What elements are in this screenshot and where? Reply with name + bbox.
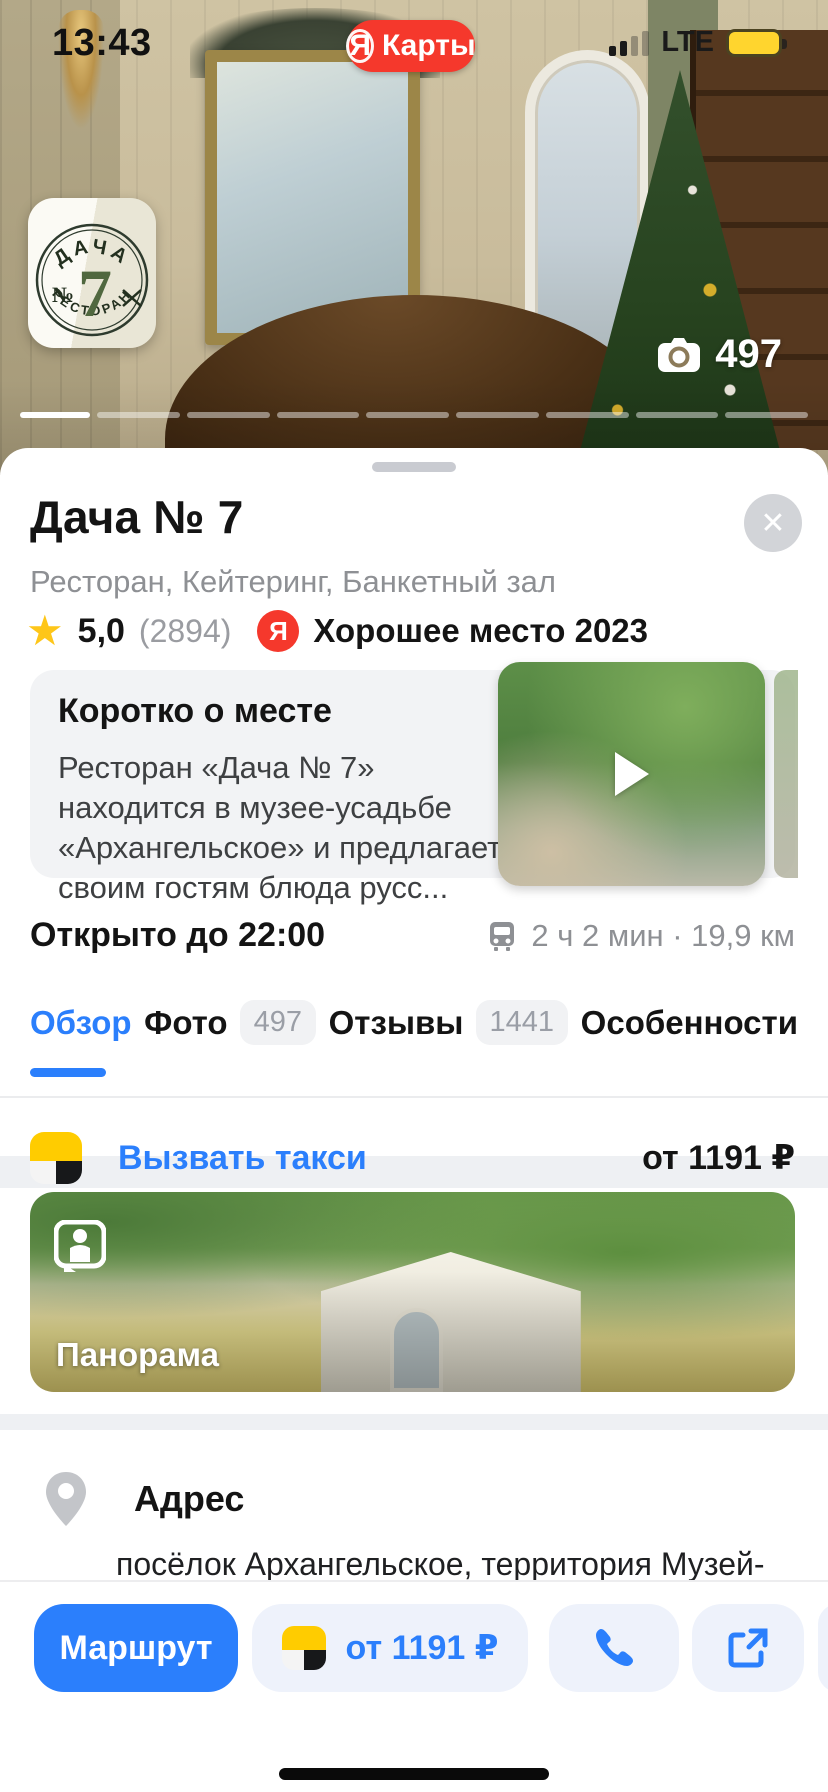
award-label: Хорошее место 2023 [313,612,648,650]
taxi-button-price: от 1191 ₽ [346,1628,499,1668]
tab-reviews-badge: 1441 [476,1000,569,1045]
route-info-text: 2 ч 2 мин · 19,9 км [531,918,795,954]
place-categories: Ресторан, Кейтеринг, Банкетный зал [30,564,556,600]
route-info[interactable]: 2 ч 2 мин · 19,9 км [485,918,795,954]
logo-number-sign: № [52,282,74,307]
yandex-maps-app-badge[interactable]: Я Карты [347,20,475,72]
star-icon: ★ [26,610,64,652]
photo-count-button[interactable]: 497 [657,332,782,377]
status-bar: 13:43 Я Карты LTE [0,18,828,70]
phone-icon [591,1625,637,1671]
network-type-label: LTE [661,26,714,59]
status-time: 13:43 [52,22,152,65]
panorama-decoration-shade [30,1272,795,1392]
panorama-person-icon [54,1220,106,1272]
yandex-go-icon [282,1626,326,1670]
video-thumbnail[interactable] [498,662,765,886]
tab-photos-badge: 497 [240,1000,316,1045]
video-thumbnail-next [774,670,798,878]
yandex-maps-place-screen: 13:43 Я Карты LTE ДАЧА [0,0,828,1792]
location-pin-icon [42,1470,90,1528]
tab-photos[interactable]: Фото 497 [144,1000,316,1045]
active-tab-underline [30,1068,106,1077]
panorama-label: Панорама [56,1336,219,1374]
rating-row[interactable]: ★ 5,0 (2894) Я Хорошее место 2023 [26,610,648,652]
section-separator [0,1414,828,1430]
place-photo-gallery[interactable]: 13:43 Я Карты LTE ДАЧА [0,0,828,475]
call-taxi-link[interactable]: Вызвать такси [118,1139,367,1178]
rating-value: 5,0 [78,612,125,651]
bus-icon [485,919,519,953]
route-button[interactable]: Маршрут [34,1604,238,1692]
panorama-card[interactable]: Панорама [30,1192,795,1392]
tab-reviews[interactable]: Отзывы 1441 [329,1000,568,1045]
drag-handle[interactable] [372,462,456,472]
share-external-icon [725,1625,771,1671]
yandex-award-icon: Я [257,610,299,652]
camera-icon [657,337,701,373]
share-button[interactable] [692,1604,804,1692]
signal-strength-icon [609,30,649,56]
photo-count-value: 497 [715,332,782,377]
divider [0,1096,828,1098]
logo-digit: 7 [78,255,112,331]
taxi-button[interactable]: от 1191 ₽ [252,1604,528,1692]
place-title: Дача № 7 [30,490,244,544]
rating-reviews-count: (2894) [139,613,232,650]
address-heading: Адрес [134,1478,244,1520]
yandex-logo-icon: Я [346,29,374,63]
address-text[interactable]: посёлок Архангельское, территория Музей- [116,1546,806,1583]
tab-features[interactable]: Особенности [581,1004,798,1042]
close-button[interactable]: ✕ [744,494,802,552]
photo-carousel-indicator[interactable] [20,412,808,418]
about-heading: Коротко о месте [58,692,332,731]
taxi-price: от 1191 ₽ [642,1138,795,1178]
tab-overview[interactable]: Обзор [30,1004,132,1042]
about-text: Ресторан «Дача № 7» находится в музее-ус… [58,748,528,908]
bottom-action-bar: Маршрут от 1191 ₽ [0,1580,828,1792]
place-logo-badge[interactable]: ДАЧА РЕСТОРАН № 7 [28,198,156,348]
call-taxi-row[interactable]: Вызвать такси от 1191 ₽ [30,1112,795,1204]
call-button[interactable] [549,1604,679,1692]
app-badge-label: Карты [382,29,476,63]
tab-bar: Обзор Фото 497 Отзывы 1441 Особенности [30,1000,798,1045]
home-indicator[interactable] [279,1768,549,1780]
yandex-go-icon [30,1132,82,1184]
close-icon: ✕ [760,506,785,541]
opening-hours[interactable]: Открыто до 22:00 [30,916,325,955]
play-icon [615,752,649,796]
next-action-button-partial[interactable] [818,1604,828,1692]
battery-icon [726,29,782,57]
